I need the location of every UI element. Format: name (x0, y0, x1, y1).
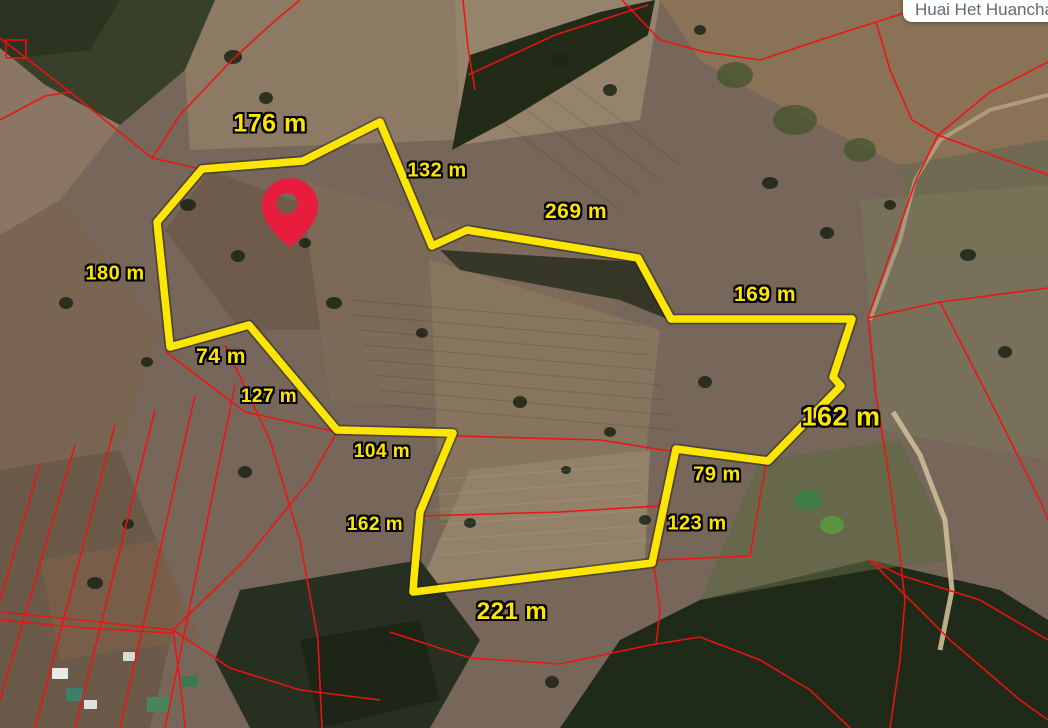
satellite-imagery (0, 0, 1048, 728)
map-canvas[interactable]: 176 m132 m269 m169 m180 m74 m127 m104 m1… (0, 0, 1048, 728)
place-label-text: Huai Het Huanchan (915, 0, 1048, 20)
place-label[interactable]: Huai Het Huanchan (903, 0, 1048, 22)
